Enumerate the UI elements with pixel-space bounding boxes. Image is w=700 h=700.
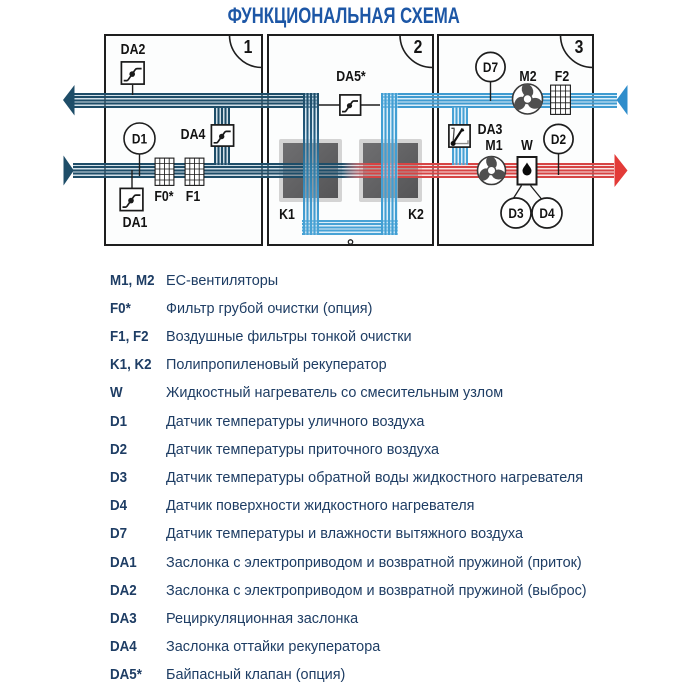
svg-text:D1: D1 [132, 131, 147, 147]
svg-text:D3: D3 [508, 205, 523, 221]
svg-text:D2: D2 [551, 131, 566, 147]
svg-text:D7: D7 [483, 59, 498, 75]
svg-text:D4: D4 [539, 205, 555, 221]
